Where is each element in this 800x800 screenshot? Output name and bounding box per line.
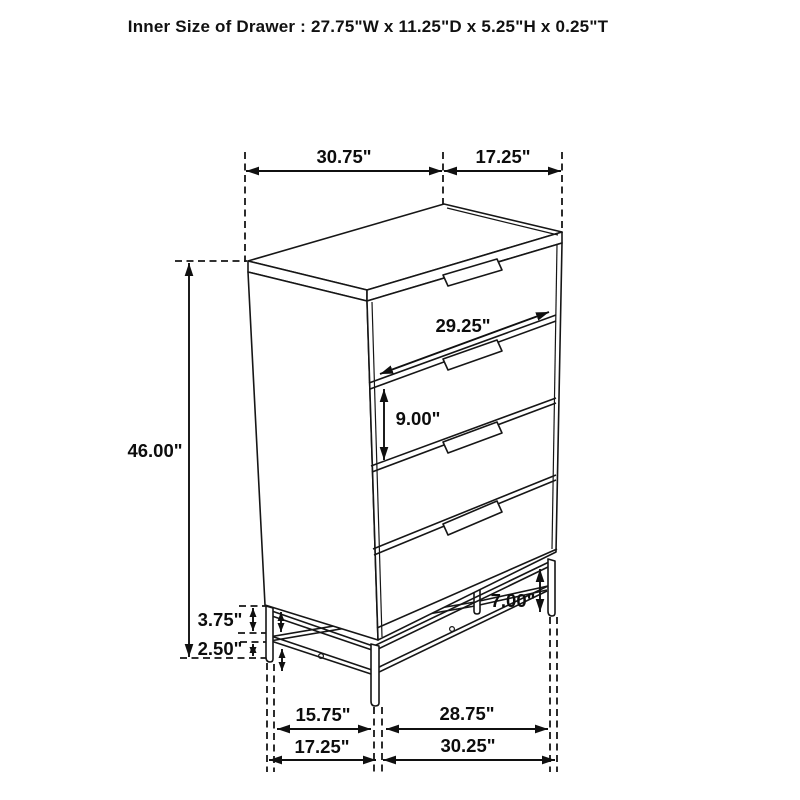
dim-frame-top-offset-label: 3.75" (198, 609, 243, 630)
dim-clearance-label: 7.00" (491, 590, 536, 611)
dim-floor-depth-outer-label: 17.25" (294, 736, 349, 757)
dim-height-label: 46.00" (127, 440, 182, 461)
dim-floor-depth-inner-label: 15.75" (295, 704, 350, 725)
leg-right (548, 559, 555, 616)
dim-foot-height-label: 2.50" (198, 638, 243, 659)
dim-drawer-front-height-label: 9.00" (396, 408, 441, 429)
furniture-dimension-diagram: Inner Size of Drawer : 27.75"W x 11.25"D… (0, 0, 800, 800)
diagram-canvas: 30.75" 17.25" 46.00" 29.25" 9.00" 3.75" … (0, 0, 800, 800)
dim-top-depth-label: 17.25" (475, 146, 530, 167)
dim-floor-width-outer-label: 30.25" (440, 735, 495, 756)
dim-drawer-width-label: 29.25" (435, 315, 490, 336)
dim-floor-width-inner-label: 28.75" (439, 703, 494, 724)
bolt-front (450, 627, 455, 632)
dim-top-width-label: 30.75" (316, 146, 371, 167)
leg-front (371, 644, 379, 706)
cabinet-side-panel (248, 272, 378, 640)
leg-left (266, 606, 273, 662)
